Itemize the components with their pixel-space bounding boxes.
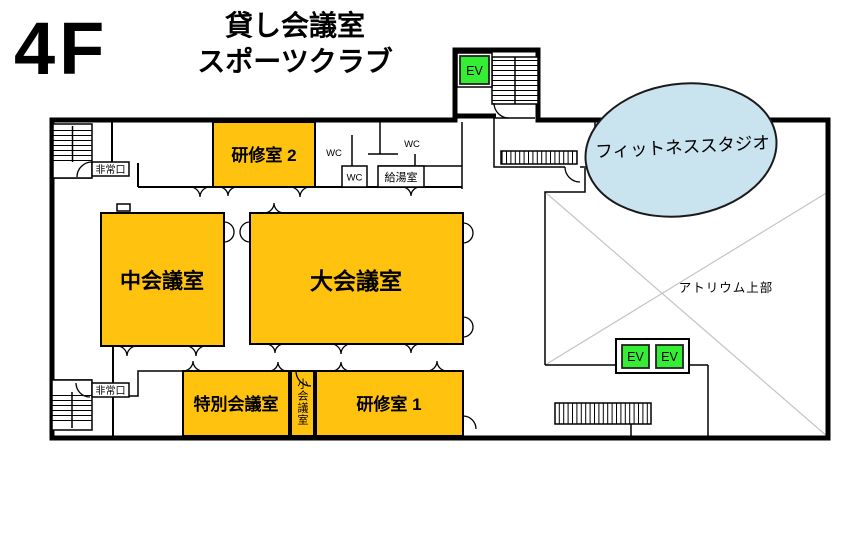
door-swing [332,362,350,371]
heading-line-1: 貸し会議室 [130,8,460,44]
wc-label: WC [404,139,420,150]
wc-label: WC [347,173,363,184]
floor-number-label: 4F [14,6,108,91]
walkway-wall [545,365,708,437]
wc-label: WC [326,148,342,159]
door-swing [427,361,447,371]
door-swing [183,361,203,371]
room-training-1-label: 研修室 1 [356,394,421,414]
door-swing [190,187,210,197]
stairs-top-left [53,124,92,178]
elevator-top: EV [457,53,492,87]
stairs-bottom-left [52,380,92,430]
elevator-label: EV [661,350,678,364]
escalator-top [501,151,577,164]
room-medium-conference-label: 中会議室 [120,269,204,293]
atrium-label: アトリウム上部 [679,280,774,295]
door-swing [494,103,509,118]
door-swing [463,223,473,243]
room-large-conference-label: 大会議室 [310,268,402,294]
door-swing [463,317,473,337]
emergency-exit-label: 非常口 [96,384,126,397]
building-use-heading: 貸し会議室 スポーツクラブ [130,8,460,80]
floor-plan-svg: EV EV EV 研修室 2 中会議室 大会議室 特別会議室 小会議室 研修室 … [0,0,862,555]
door-swing [565,167,580,182]
door-swing [269,362,287,371]
door-swing [266,344,284,353]
elevator-label: EV [627,350,644,364]
room-special-conference-label: 特別会議室 [194,394,279,414]
floor-map-page: 4F 貸し会議室 スポーツクラブ [0,0,862,555]
escalator-bottom [555,403,651,424]
door-swing [264,203,284,213]
elevator-label: EV [466,64,483,78]
atrium-diagonal-1 [545,192,828,437]
door-swing [240,222,250,242]
door-swing [463,416,476,429]
door-swing [224,222,234,242]
wc-section: WC WC WC 給湯室 [326,139,424,187]
kitchenette-label: 給湯室 [385,170,418,184]
stairs-top-right [492,57,538,118]
door-swing [402,344,420,353]
elevator-bottom-pair: EV EV [616,339,689,373]
wall-niche [117,204,130,211]
door-swing [117,346,137,356]
door-swing [186,346,206,356]
door-swing [290,187,310,197]
door-swing [402,187,420,196]
room-training-2-label: 研修室 2 [231,145,296,165]
heading-line-2: スポーツクラブ [130,44,460,80]
door-swing [331,344,351,354]
door-swing [219,187,237,196]
fitness-studio: フィットネススタジオ [577,71,786,228]
emergency-exit-label: 非常口 [96,163,126,176]
